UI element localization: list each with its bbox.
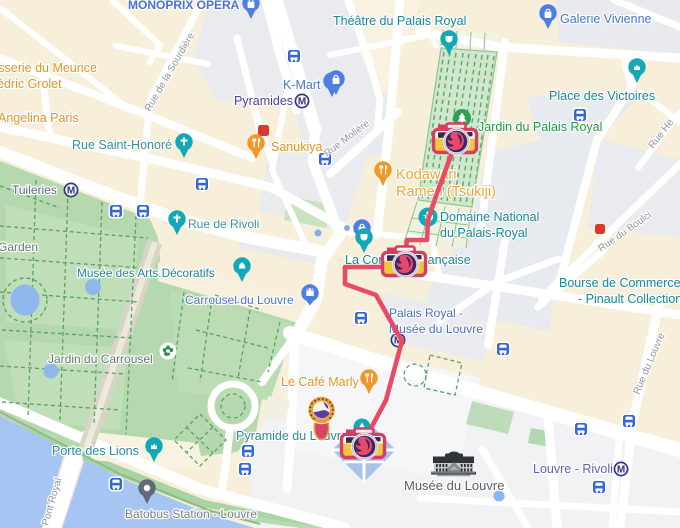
svg-text:K-Mart: K-Mart bbox=[283, 78, 321, 92]
svg-text:Domaine National: Domaine National bbox=[440, 210, 539, 224]
svg-text:Musée des Arts.Décoratifs: Musée des Arts.Décoratifs bbox=[77, 266, 215, 280]
svg-text:Jardin du Palais Royal: Jardin du Palais Royal bbox=[478, 120, 602, 134]
svg-text:Rue Saint-Honoré: Rue Saint-Honoré bbox=[72, 138, 172, 152]
svg-text:Pyramide du Louvre: Pyramide du Louvre bbox=[236, 429, 348, 443]
svg-text:Théâtre du Palais Royal: Théâtre du Palais Royal bbox=[333, 14, 466, 28]
svg-text:Le Café Marly: Le Café Marly bbox=[281, 375, 360, 389]
svg-text:Porte des Lions: Porte des Lions bbox=[52, 444, 139, 458]
svg-text:du Palais-Royal: du Palais-Royal bbox=[440, 226, 528, 240]
svg-text:Bourse de Commerce: Bourse de Commerce bbox=[559, 276, 680, 290]
svg-text:Galerie Vivienne: Galerie Vivienne bbox=[560, 12, 652, 26]
svg-text:Tuileries: Tuileries bbox=[12, 183, 57, 197]
svg-text:Louvre - Rivoli: Louvre - Rivoli bbox=[533, 462, 613, 476]
svg-text:Palais Royal -: Palais Royal - bbox=[389, 306, 463, 320]
svg-text:MONOPRIX OPÉRA: MONOPRIX OPÉRA bbox=[128, 0, 240, 12]
svg-text:tisserie du Meurice: tisserie du Meurice bbox=[0, 61, 97, 75]
svg-text:Garden: Garden bbox=[0, 240, 38, 254]
svg-text:Musée du Louvre: Musée du Louvre bbox=[404, 478, 504, 493]
svg-text:Carrousel du Louvre: Carrousel du Louvre bbox=[185, 293, 294, 307]
svg-text:Pyramides: Pyramides bbox=[234, 94, 293, 108]
svg-text:Rue de Rivoli: Rue de Rivoli bbox=[188, 217, 259, 231]
svg-text:Place des Victoires: Place des Victoires bbox=[549, 89, 655, 103]
svg-text:Ramen (Tsukiji): Ramen (Tsukiji) bbox=[396, 184, 496, 200]
svg-text:Batobus Station - Louvre: Batobus Station - Louvre bbox=[125, 507, 257, 521]
svg-text:- Pinault Collection: - Pinault Collection bbox=[578, 292, 680, 306]
svg-text:Sanukiya: Sanukiya bbox=[271, 140, 322, 154]
svg-text:édric Grolet: édric Grolet bbox=[0, 77, 62, 91]
svg-text:Jardin du Carrousel: Jardin du Carrousel bbox=[48, 352, 153, 366]
svg-text:Musée du Louvre: Musée du Louvre bbox=[389, 322, 483, 336]
svg-text:Angelina Paris: Angelina Paris bbox=[0, 111, 79, 125]
